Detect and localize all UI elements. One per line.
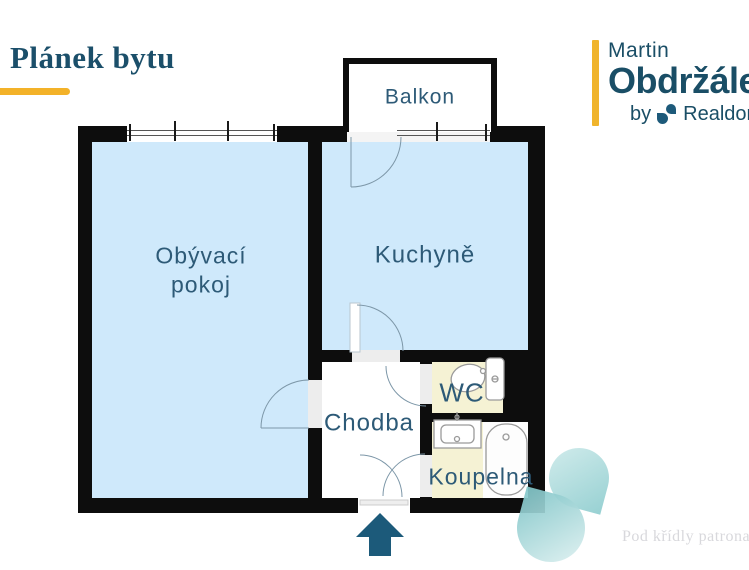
door-gap-living — [308, 380, 322, 428]
watermark-tagline: Pod křídly patrona r — [622, 528, 749, 546]
label-wc: WC — [439, 376, 484, 409]
door-gap-wc — [420, 364, 432, 404]
entrance-gap — [358, 498, 410, 513]
wall-wc-right-block — [503, 350, 528, 422]
label-kitchen: Kuchyně — [375, 241, 475, 272]
wall-bottom — [78, 498, 545, 513]
room-living-room — [92, 142, 308, 498]
floor-plan-page: { "header": { "title": "Plánek bytu" }, … — [0, 0, 749, 562]
label-bathroom: Koupelna — [428, 462, 533, 491]
logo-accent-bar — [592, 40, 599, 126]
label-hallway: Chodba — [324, 409, 414, 440]
logo-first-name: Martin — [608, 40, 749, 62]
title-underline — [0, 88, 70, 95]
arrow-up-icon — [356, 513, 404, 556]
label-balcony: Balkon — [385, 85, 455, 112]
door-gap-kitchen — [352, 350, 400, 362]
wall-wc-bathroom — [432, 413, 503, 422]
logo-by-label: by — [630, 103, 651, 126]
label-living-room-line1: Obývací — [155, 242, 246, 271]
label-living-room-line2: pokoj — [155, 271, 246, 300]
page-title: Plánek bytu — [10, 40, 175, 76]
window-living-gap — [127, 126, 277, 142]
wall-right — [528, 126, 545, 513]
brand-logo: Martin Obdržálek by Realdomu — [592, 40, 749, 126]
wall-living-hall — [308, 142, 322, 498]
logo-last-name: Obdržálek — [608, 62, 749, 101]
realdomus-swirl-icon — [657, 104, 677, 124]
wall-left — [78, 126, 92, 513]
label-living-room: Obývací pokoj — [155, 242, 246, 301]
logo-brand-name: Realdomu — [683, 103, 749, 126]
